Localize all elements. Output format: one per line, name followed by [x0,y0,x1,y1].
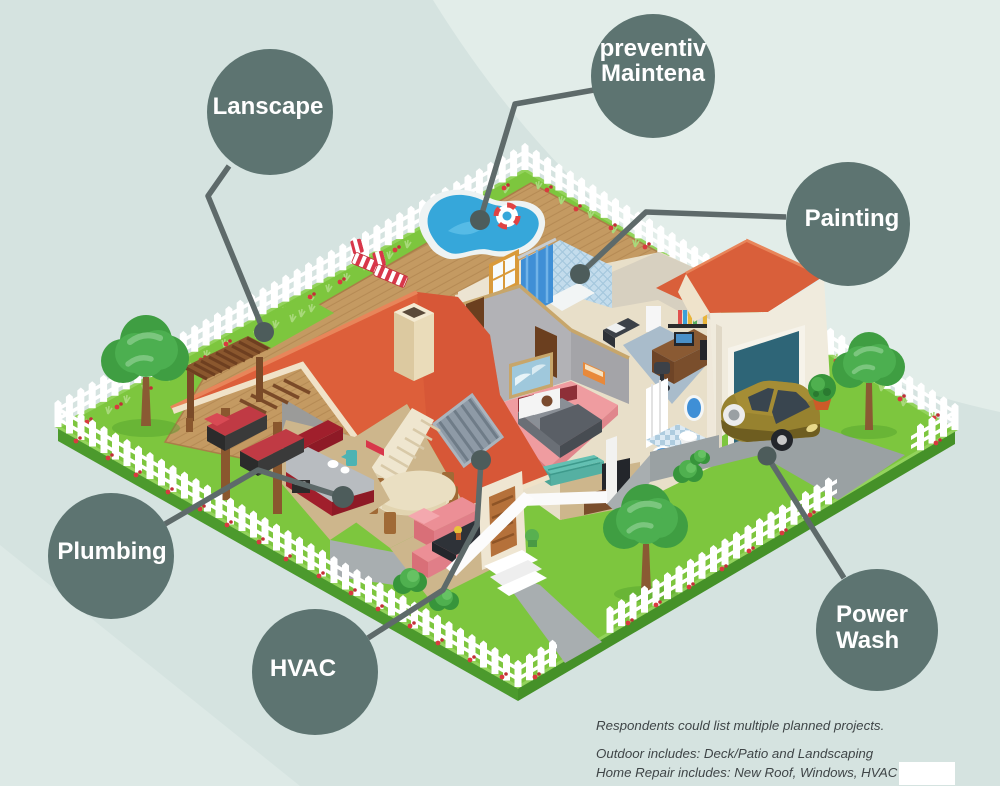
svg-text:Power: Power [836,601,908,628]
svg-text:Plumbing: Plumbing [57,538,166,565]
svg-text:Lanscape: Lanscape [213,93,324,120]
svg-text:Outdoor includes: Deck/Patio a: Outdoor includes: Deck/Patio and Landsca… [596,746,874,761]
svg-text:Home Repair includes: New Roof: Home Repair includes: New Roof, Windows,… [596,765,898,780]
svg-text:Wash: Wash [836,627,899,654]
svg-text:Respondents could list multipl: Respondents could list multiple planned … [596,718,884,733]
svg-text:Maintena: Maintena [601,60,706,87]
svg-text:preventiv: preventiv [600,35,707,62]
svg-text:Painting: Painting [805,205,900,232]
svg-text:HVAC: HVAC [270,655,336,682]
